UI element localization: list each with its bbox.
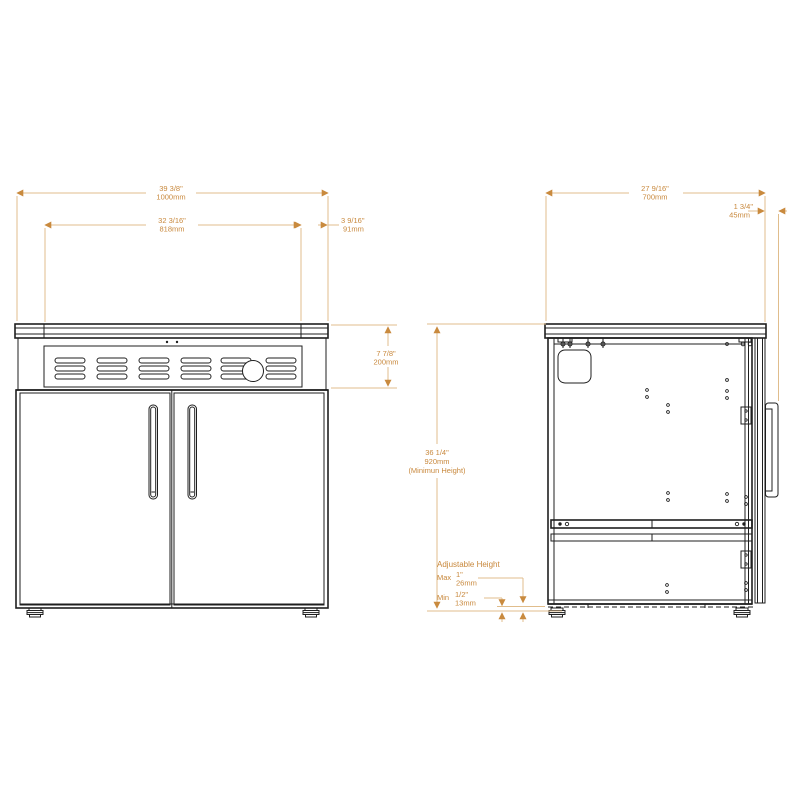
hinge-bracket-lower: [741, 551, 751, 568]
left-door-handle: [149, 405, 158, 499]
adjustable-height-title: Adjustable Height: [437, 560, 500, 569]
side-door-edge: [755, 338, 765, 603]
front-cabinet: [16, 390, 328, 617]
panel-dot: [176, 341, 178, 343]
dimension-depth: 27 9/16" 700mm: [546, 184, 765, 321]
dimension-width-total: 39 3/8" 1000mm: [17, 184, 328, 321]
side-back-foot: [549, 608, 565, 617]
side-countertop: [545, 324, 766, 338]
panel-dot: [166, 341, 168, 343]
side-door-handle: [766, 403, 779, 497]
front-left-foot: [27, 608, 43, 617]
dim-height-note: (Minimun Height): [408, 466, 466, 475]
dim-hood-mm: 200mm: [373, 358, 398, 367]
dim-total-mm: 1000mm: [156, 193, 185, 202]
front-right-foot: [303, 608, 319, 617]
max-mm: 26mm: [456, 579, 477, 588]
side-view: [545, 324, 778, 617]
dim-vent-mm: 818mm: [159, 225, 184, 234]
front-countertop: [15, 324, 328, 338]
front-control-panel: [16, 338, 328, 390]
min-mm: 13mm: [455, 599, 476, 608]
max-label: Max: [437, 573, 451, 582]
hinge-bracket-upper: [741, 407, 751, 424]
side-body: [548, 338, 755, 617]
left-door: [20, 393, 170, 605]
adjustable-height-callout: Adjustable Height Max 1" 26mm Min 1/2" 1…: [437, 560, 545, 622]
access-panel: [558, 350, 591, 383]
side-front-foot: [734, 608, 750, 617]
dim-handle-mm: 45mm: [729, 211, 750, 220]
dimension-height-hood: 7 7/8" 200mm: [331, 325, 399, 388]
mounting-clips: [558, 338, 752, 348]
min-label: Min: [437, 593, 449, 602]
dim-side-mm: 91mm: [343, 225, 364, 234]
dimension-drawing-canvas: 39 3/8" 1000mm 32 3/16" 818mm 3 9/16" 91…: [0, 0, 800, 800]
front-view: [15, 324, 328, 617]
dim-depth-mm: 700mm: [642, 193, 667, 202]
screw-holes: [646, 343, 748, 594]
slide-rails: [551, 520, 752, 541]
technical-drawing-page: 39 3/8" 1000mm 32 3/16" 818mm 3 9/16" 91…: [0, 0, 800, 800]
dimension-width-vent: 32 3/16" 818mm: [45, 216, 301, 322]
control-knob: [243, 361, 264, 382]
dimension-handle: 1 3/4" 45mm: [729, 202, 787, 401]
dim-height-mm: 920mm: [424, 457, 449, 466]
dim-height-inches: 36 1/4": [425, 448, 449, 457]
right-door-handle: [188, 405, 197, 499]
